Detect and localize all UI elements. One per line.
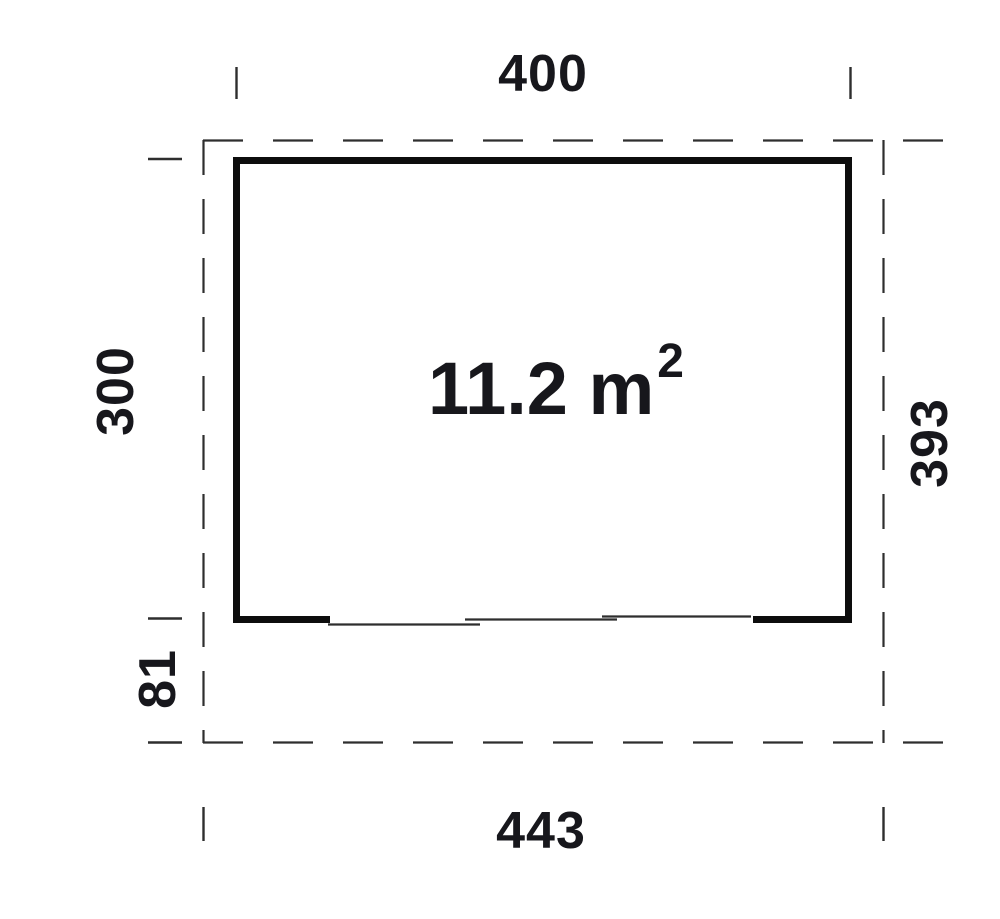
floor-plan-canvas: 400 300 393 81 443 11.2 m2	[0, 0, 1000, 919]
floor-plan-lines	[0, 0, 1000, 919]
area-value: 11.2 m	[428, 347, 654, 430]
dimension-ticks	[148, 67, 884, 841]
door-sliding-panels	[328, 617, 751, 625]
roof-dashed-outline	[203, 140, 943, 743]
area-exponent: 2	[657, 338, 684, 386]
dimension-overhang-label: 81	[132, 649, 184, 709]
dimension-height-left-label: 300	[90, 346, 142, 436]
dimension-width-top-label: 400	[498, 48, 588, 100]
dimension-height-right-label: 393	[904, 398, 956, 488]
dimension-width-bottom-label: 443	[496, 805, 586, 857]
area-label: 11.2 m2	[428, 352, 684, 426]
